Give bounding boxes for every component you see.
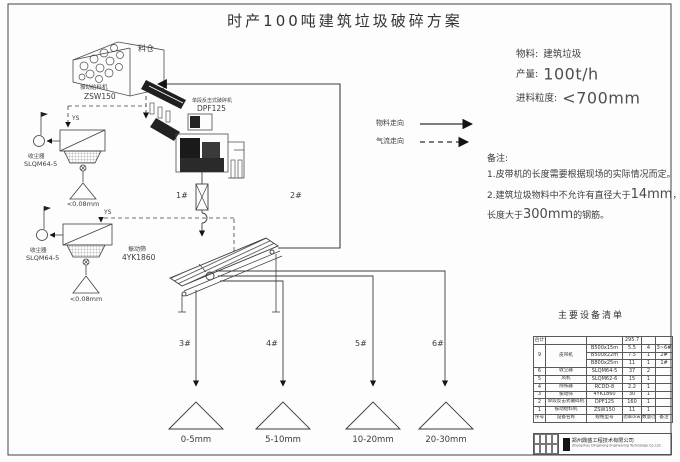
info-material: 物料: 建筑垃圾 [516, 46, 581, 62]
cell: 振动给料机 [546, 407, 587, 415]
conveyor-label-6: 6# [432, 340, 444, 348]
feed-label: 进料粒度: [516, 93, 557, 104]
equipment-table-title: 主要设备清单 [558, 312, 624, 321]
cell: 1 [642, 352, 656, 360]
table-row: 3振动筛 4YK186030 1 [534, 391, 673, 399]
vibrating-screen [170, 238, 282, 312]
material-label: 物料: [516, 49, 538, 60]
capacity-value: 100t/h [543, 65, 598, 84]
cell: 4 [642, 344, 656, 352]
cell: 11 [623, 360, 642, 368]
cell: 1 [642, 391, 656, 399]
cell: 振动筛 [546, 391, 587, 399]
cell: 数量(台) [642, 414, 656, 422]
output-size-3: 10-20mm [345, 436, 401, 445]
cell [656, 399, 673, 407]
cell: 2.2 [623, 383, 642, 391]
cell: B500x15m [587, 344, 623, 352]
cell [656, 337, 673, 345]
table-row: 2单段反击式破碎机 DPF125160 1 [534, 399, 673, 407]
material-value: 建筑垃圾 [543, 49, 581, 60]
crusher-model: DPF125 [197, 105, 226, 113]
note-line-2: 2.建筑垃圾物料中不允许有直径大于14mm， [487, 188, 680, 201]
cell: 6 [534, 368, 546, 376]
cell: 2 [642, 368, 656, 376]
cell: 1 [642, 407, 656, 415]
dust-upper-model: SLQM64-5 [24, 161, 57, 168]
cell [656, 391, 673, 399]
cell [642, 337, 656, 345]
cell: 3 [534, 391, 546, 399]
feed-value: <700mm [562, 89, 640, 108]
table-row: 1振动给料机 ZSW15011 1 [534, 407, 673, 415]
equipment-table: 合计 295.7 9 皮带机 B500x15m5.5 43~6# B500x22… [533, 336, 673, 423]
cell: ZSW150 [587, 407, 623, 415]
cell: B800x25m [587, 360, 623, 368]
cell: 风机 [546, 375, 587, 383]
output-size-2: 5-10mm [255, 436, 311, 445]
company-name-en: Zhengzhou Dingsheng Engineering Technolo… [572, 444, 661, 448]
cell: 序号 [534, 414, 546, 422]
feeder-name: 振动给料机 [80, 86, 108, 92]
table-row: 4除铁器 RCDD-82.2 1 [534, 383, 673, 391]
notes-heading: 备注: [487, 155, 508, 164]
info-feed-size: 进料粒度: <700mm [516, 90, 640, 107]
output-size-1: 0-5mm [168, 436, 224, 445]
cell: 除铁器 [546, 383, 587, 391]
cell: 1 [642, 360, 656, 368]
info-capacity: 产量: 100t/h [516, 66, 599, 83]
conveyor-label-1: 1# [176, 192, 188, 200]
output-size-4: 20-30mm [418, 436, 474, 445]
cell: 2 [534, 399, 546, 407]
conveyor-label-5: 5# [355, 340, 367, 348]
note-line-1: 1.皮带机的长度需要根据现场的实际情况而定。 [487, 171, 676, 180]
cell: 功率(kw) [623, 414, 642, 422]
cell [546, 337, 587, 345]
cell: 单段反击式破碎机 [546, 399, 587, 407]
drawing-canvas: 时产100吨建筑垃圾破碎方案 物料: 建筑垃圾 产量: 100t/h 进料粒度:… [0, 0, 680, 462]
table-row: 9 皮带机 B500x15m5.5 43~6# [534, 344, 673, 352]
cell: 3~6# [656, 344, 673, 352]
company-info: 郑州鼎盛工程技术有限公司 Zhengzhou Dingsheng Enginee… [572, 434, 671, 454]
cell [656, 383, 673, 391]
conveyor-label-2: 2# [290, 192, 302, 200]
cell: B500x22m [587, 352, 623, 360]
cell: 收尘器 [546, 368, 587, 376]
dust-lower-fines: <0.08mm [66, 296, 106, 303]
air-ducts [68, 106, 234, 251]
table-header-row: 序号设备名称 规格型号功率(kw) 数量(台)备注 [534, 414, 673, 422]
cell: 295.7 [623, 337, 642, 345]
page-title: 时产100吨建筑垃圾破碎方案 [180, 14, 510, 29]
cell: 5.5 [623, 344, 642, 352]
cell: SLQM64-5 [587, 368, 623, 376]
silo-label: 料仓 [138, 45, 154, 53]
conveyor-label-4: 4# [266, 340, 278, 348]
product-piles [169, 402, 473, 429]
cell: 合计 [534, 337, 546, 345]
cell: 4YK1860 [587, 391, 623, 399]
cell: 设备名称 [546, 414, 587, 422]
cell: RCDD-8 [587, 383, 623, 391]
company-logo [563, 438, 569, 451]
cell: 15 [623, 375, 642, 383]
cell: 1 [534, 407, 546, 415]
cell [656, 368, 673, 376]
dust-lower-model: SLQM64-5 [26, 255, 59, 262]
cell: 皮带机 [546, 344, 587, 367]
cell: 1 [642, 375, 656, 383]
cell: 11 [623, 407, 642, 415]
cell: 9 [534, 344, 546, 367]
table-row: 5风机 SLQM62-615 1 [534, 375, 673, 383]
title-block: 郑州鼎盛工程技术有限公司 Zhengzhou Dingsheng Enginee… [533, 433, 672, 455]
vibrating-feeder [141, 80, 186, 122]
cell: 1 [642, 399, 656, 407]
cell: 规格型号 [587, 414, 623, 422]
cell [656, 375, 673, 383]
revision-grid [534, 434, 559, 454]
cell: 5 [534, 375, 546, 383]
dust-upper-fines: <0.08mm [63, 201, 103, 208]
note-line-3: 长度大于300mm的钢筋。 [487, 208, 609, 221]
cell: 4 [534, 383, 546, 391]
feeder-model: ZSW150 [84, 93, 116, 101]
cell: 1 [642, 383, 656, 391]
conveyor-label-3: 3# [179, 340, 191, 348]
cell: SLQM62-6 [587, 375, 623, 383]
cell: 37 [623, 368, 642, 376]
cell: 30 [623, 391, 642, 399]
cell: 7.5 [623, 352, 642, 360]
table-total-row: 合计 295.7 [534, 337, 673, 345]
legend-air-flow: 气流走向 [376, 138, 404, 145]
cell: 1# [656, 360, 673, 368]
dust-upper-duct-label: YS [72, 116, 79, 122]
cell: DPF125 [587, 399, 623, 407]
cell: 160 [623, 399, 642, 407]
legend-material-flow: 物料走向 [376, 120, 404, 127]
table-row: 6收尘器 SLQM64-537 2 [534, 368, 673, 376]
legend-arrows [420, 124, 472, 142]
cell [656, 407, 673, 415]
cell [587, 337, 623, 345]
dust-lower-duct-label: YS [104, 210, 111, 216]
impact-crusher [150, 114, 244, 178]
cell: 备注 [656, 414, 673, 422]
cell: 2# [656, 352, 673, 360]
capacity-label: 产量: [516, 69, 538, 80]
screen-model: 4YK1860 [122, 254, 155, 262]
